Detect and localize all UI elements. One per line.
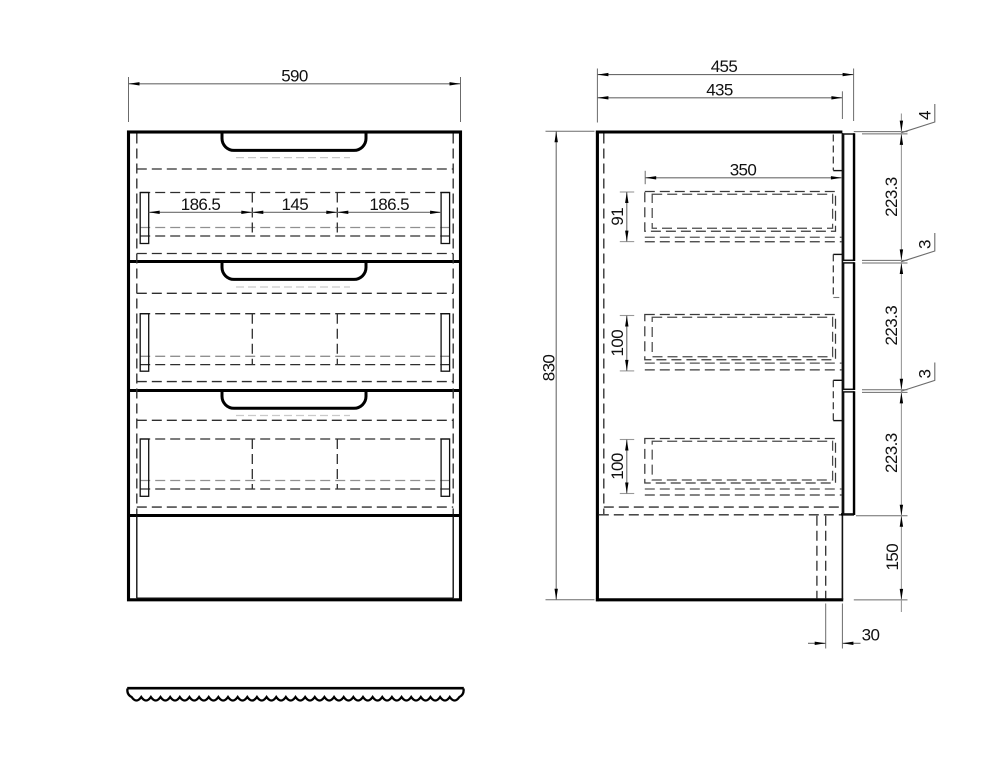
svg-text:223.3: 223.3 [882,306,901,346]
svg-text:3: 3 [915,240,934,249]
svg-text:30: 30 [862,626,880,645]
svg-text:350: 350 [730,160,757,179]
svg-text:3: 3 [915,369,934,378]
svg-text:100: 100 [608,330,627,357]
svg-text:590: 590 [281,66,308,85]
svg-text:455: 455 [711,57,738,76]
svg-text:145: 145 [282,195,309,214]
svg-text:150: 150 [883,544,902,571]
svg-text:186.5: 186.5 [369,195,409,214]
svg-text:91: 91 [608,208,627,226]
svg-text:223.3: 223.3 [882,433,901,473]
svg-text:100: 100 [608,453,627,480]
svg-text:435: 435 [706,81,733,100]
svg-text:186.5: 186.5 [181,195,221,214]
svg-text:223.3: 223.3 [882,177,901,217]
svg-text:830: 830 [539,355,558,382]
svg-text:4: 4 [915,111,934,120]
